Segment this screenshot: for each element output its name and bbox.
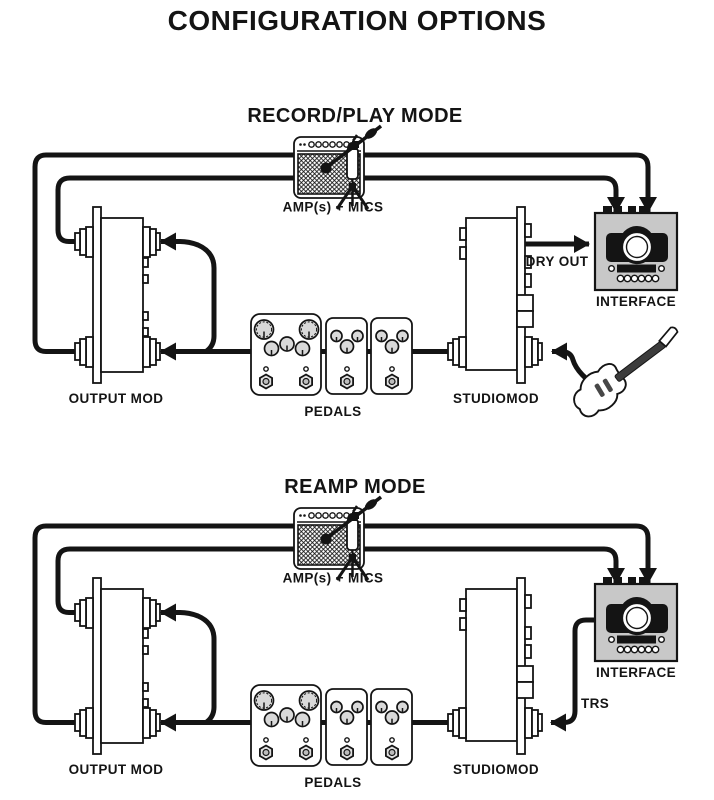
configuration-diagram: RECORD/PLAY MODE AMP(s) + MICS OUTPUT MO… bbox=[0, 0, 714, 800]
interface-unit bbox=[595, 206, 677, 290]
output-mod-label: OUTPUT MOD bbox=[69, 391, 164, 406]
amp-mics-icon bbox=[294, 126, 381, 209]
amp-mics-label: AMP(s) + MICS bbox=[283, 200, 384, 215]
diagram-reamp: REAMP MODE AMP(s) + MICS OUTPUT MOD PEDA… bbox=[35, 476, 677, 790]
interface-label: INTERFACE bbox=[596, 665, 676, 680]
interface-label: INTERFACE bbox=[596, 294, 676, 309]
output-mod-unit bbox=[75, 578, 160, 754]
mode-title: REAMP MODE bbox=[284, 476, 425, 498]
diagram-record-play: RECORD/PLAY MODE AMP(s) + MICS OUTPUT MO… bbox=[35, 105, 690, 423]
pedals-label: PEDALS bbox=[304, 775, 361, 790]
amp-mics-icon bbox=[294, 497, 381, 580]
dry-out-label: DRY OUT bbox=[526, 254, 589, 269]
mode-title: RECORD/PLAY MODE bbox=[247, 105, 462, 127]
studiomod-label: STUDIOMOD bbox=[453, 762, 539, 777]
amp-mics-label: AMP(s) + MICS bbox=[283, 571, 384, 586]
trs-label: TRS bbox=[581, 696, 609, 711]
pedals-label: PEDALS bbox=[304, 404, 361, 419]
studiomod-unit bbox=[448, 578, 542, 754]
output-mod-unit bbox=[75, 207, 160, 383]
output-mod-label: OUTPUT MOD bbox=[69, 762, 164, 777]
interface-unit bbox=[595, 577, 677, 661]
pedalboard bbox=[251, 314, 412, 395]
studiomod-unit bbox=[448, 207, 542, 383]
configuration-options-page: CONFIGURATION OPTIONS bbox=[0, 0, 714, 800]
guitar-icon bbox=[566, 316, 690, 423]
studiomod-label: STUDIOMOD bbox=[453, 391, 539, 406]
pedalboard bbox=[251, 685, 412, 766]
